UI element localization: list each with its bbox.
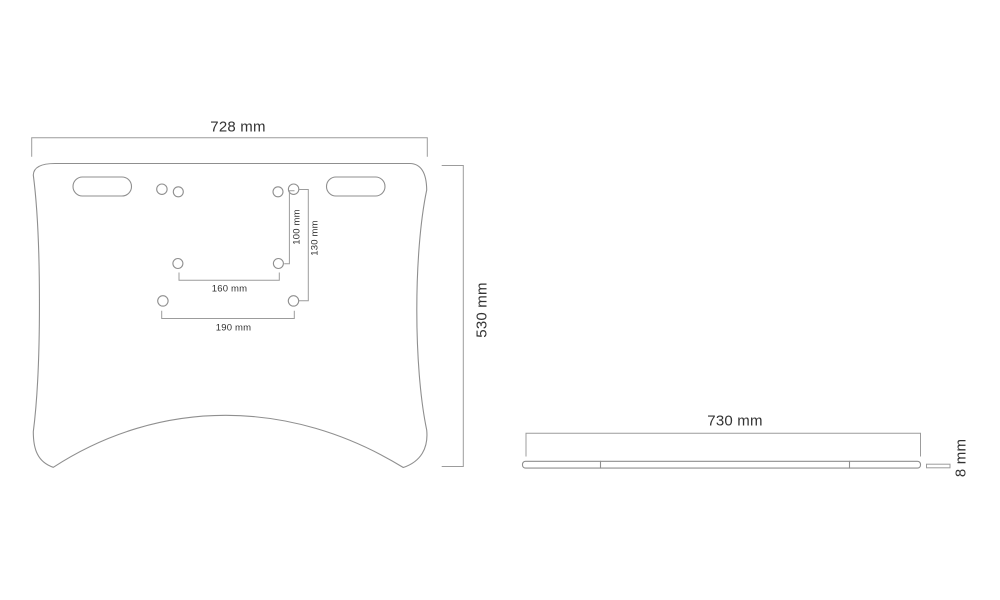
dim-label-holes-100: 100 mm <box>291 209 302 245</box>
dim-marker-8mm <box>927 464 951 468</box>
dim-bracket-160 <box>179 273 279 281</box>
hole-top-inner-left <box>173 187 183 197</box>
hole-top-outer-right <box>288 184 298 194</box>
dim-label-plate-height: 530 mm <box>474 282 491 337</box>
dim-label-holes-130: 130 mm <box>310 220 321 256</box>
handle-slot-left <box>73 177 132 196</box>
side-profile <box>523 461 921 468</box>
dim-bracket-728 <box>32 138 428 157</box>
dim-line-130 <box>299 190 308 301</box>
dim-label-holes-160: 160 mm <box>212 283 248 294</box>
handle-slot-right <box>327 177 386 196</box>
drawing-canvas: 728 mm 530 mm 100 mm 130 mm 160 mm 190 m… <box>0 0 1000 600</box>
hole-bottom-left <box>158 296 168 306</box>
dim-bracket-190 <box>162 311 295 319</box>
dim-bracket-530 <box>442 166 464 467</box>
hole-middle-right <box>273 259 283 269</box>
hole-middle-left <box>173 259 183 269</box>
dim-label-side-width: 730 mm <box>707 413 762 430</box>
hole-bottom-right <box>288 296 298 306</box>
dim-label-plate-width: 728 mm <box>210 119 265 136</box>
plate-outline <box>33 164 427 468</box>
dim-label-side-thickness: 8 mm <box>953 439 970 477</box>
hole-top-outer-left <box>157 184 167 194</box>
dim-bracket-730 <box>526 433 921 456</box>
hole-top-inner-right <box>273 187 283 197</box>
technical-drawing-svg <box>0 0 1000 600</box>
dim-label-holes-190: 190 mm <box>216 323 252 334</box>
